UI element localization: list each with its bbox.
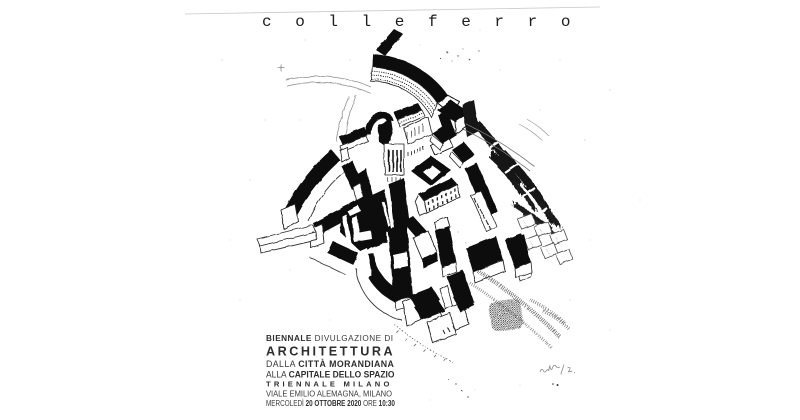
svg-text:ALLA CAPITALE DELLO SPAZIO: ALLA CAPITALE DELLO SPAZIO	[266, 369, 395, 379]
svg-text:BIENNALE DIVULGAZIONE DI: BIENNALE DIVULGAZIONE DI	[266, 334, 394, 343]
svg-text:ARCHITETTURA: ARCHITETTURA	[266, 345, 395, 359]
svg-text:colleferro: colleferro	[262, 13, 594, 31]
svg-text:VIALE EMILIO ALEMAGNA, MILANO: VIALE EMILIO ALEMAGNA, MILANO	[266, 389, 392, 398]
svg-text:DALLA CITTÀ MORANDIANA: DALLA CITTÀ MORANDIANA	[266, 359, 395, 369]
svg-text:TRIENNALE MILANO: TRIENNALE MILANO	[266, 380, 393, 389]
svg-text:MERCOLEDÌ 20 OTTOBRE 2020 ORE: MERCOLEDÌ 20 OTTOBRE 2020 ORE 10:30	[266, 398, 395, 408]
